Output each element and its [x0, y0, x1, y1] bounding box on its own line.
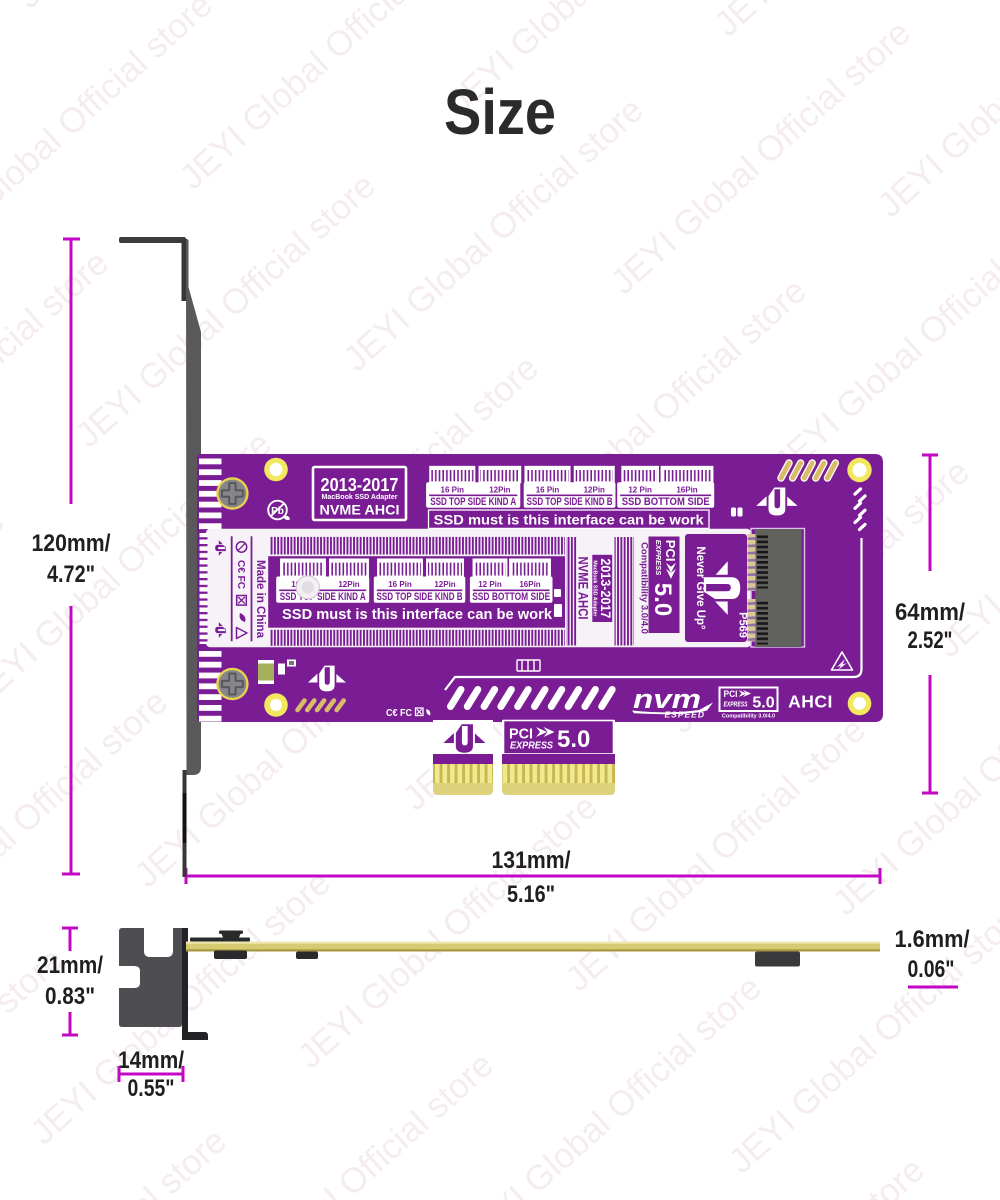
svg-text:SSD BOTTOM SIDE: SSD BOTTOM SIDE: [472, 591, 550, 603]
svg-text:MacBook SSD Adapter: MacBook SSD Adapter: [322, 494, 398, 501]
svg-text:JEYI Global Official store: JEYI Global Official store: [454, 968, 769, 1200]
svg-text:NVME AHCI: NVME AHCI: [320, 502, 400, 518]
svg-text:12Pin: 12Pin: [434, 580, 455, 589]
svg-text:JEYI Global Official store: JEYI Global Official store: [290, 787, 605, 1076]
svg-text:PCI: PCI: [663, 540, 678, 562]
svg-text:21mm/: 21mm/: [37, 952, 103, 979]
svg-text:EXPRESS: EXPRESS: [724, 702, 748, 709]
svg-text:EXPRESS: EXPRESS: [654, 540, 663, 575]
svg-text:JEYI Global Official store: JEYI Global Official store: [707, 0, 1000, 44]
svg-text:SSD TOP SIDE KIND B: SSD TOP SIDE KIND B: [527, 496, 613, 508]
svg-text:JEYI Global Official store: JEYI Global Official store: [0, 682, 175, 971]
svg-text:JEYI Global Official store: JEYI Global Official store: [603, 13, 918, 302]
svg-text:JEYI Global Official store: JEYI Global Official store: [0, 0, 220, 274]
svg-text:JEYI Global Official store: JEYI Global Official store: [766, 194, 1000, 483]
svg-text:P569: P569: [737, 612, 749, 638]
svg-text:JEYI Global Official store: JEYI Global Official store: [0, 940, 71, 1200]
svg-text:0.55": 0.55": [128, 1075, 175, 1102]
svg-text:1.6mm/: 1.6mm/: [895, 926, 970, 953]
svg-text:5.0: 5.0: [649, 583, 676, 616]
svg-text:JEYI Global Official store: JEYI Global Official store: [186, 1045, 501, 1200]
svg-text:5.0: 5.0: [752, 695, 774, 712]
svg-text:16 Pin: 16 Pin: [388, 580, 412, 589]
svg-text:JEYI Global Official store: JEYI Global Official store: [68, 166, 383, 455]
svg-text:5.16": 5.16": [507, 881, 555, 908]
svg-text:MacBook SSD Adapter: MacBook SSD Adapter: [592, 560, 598, 616]
svg-text:SSD must is this interface can: SSD must is this interface can be work: [282, 607, 553, 623]
svg-text:NVME AHCI: NVME AHCI: [576, 557, 592, 620]
svg-text:64mm/: 64mm/: [895, 599, 965, 626]
svg-text:JEYI Global Official store: JEYI Global Official store: [0, 0, 57, 93]
svg-text:0.83": 0.83": [45, 983, 95, 1010]
svg-text:0.06": 0.06": [908, 956, 955, 983]
svg-text:SSD TOP SIDE KIND B: SSD TOP SIDE KIND B: [377, 591, 463, 603]
svg-text:JEYI Global Official store: JEYI Global Official store: [617, 1150, 932, 1200]
svg-text:AHCI: AHCI: [788, 692, 833, 712]
svg-text:12Pin: 12Pin: [489, 486, 510, 495]
svg-text:SSD TOP SIDE KIND A: SSD TOP SIDE KIND A: [430, 496, 516, 508]
svg-text:Made in China: Made in China: [254, 560, 266, 639]
svg-text:2013-2017: 2013-2017: [598, 558, 614, 618]
svg-text:2013-2017: 2013-2017: [321, 475, 399, 495]
svg-text:JEYI Global Official store: JEYI Global Official store: [0, 243, 116, 532]
svg-text:EXPRESS: EXPRESS: [510, 741, 553, 752]
svg-text:12 Pin: 12 Pin: [478, 580, 502, 589]
svg-text:Size: Size: [444, 76, 556, 148]
svg-text:JEYI Global Official store: JEYI Global Official store: [172, 0, 487, 197]
svg-text:131mm/: 131mm/: [492, 847, 571, 874]
svg-text:16Pin: 16Pin: [519, 580, 540, 589]
svg-text:12Pin: 12Pin: [338, 580, 359, 589]
svg-text:PCI: PCI: [724, 689, 738, 699]
svg-text:16 Pin: 16 Pin: [441, 486, 465, 495]
svg-text:Compatibility 3.0/4.0: Compatibility 3.0/4.0: [639, 542, 650, 634]
svg-text:16 Pin: 16 Pin: [536, 486, 560, 495]
svg-text:SSD must is this interface can: SSD must is this interface can be work: [434, 513, 705, 528]
svg-text:16Pin: 16Pin: [676, 486, 697, 495]
svg-text:ESPEED: ESPEED: [665, 710, 706, 720]
svg-text:12 Pin: 12 Pin: [628, 486, 652, 495]
svg-text:5.0: 5.0: [557, 726, 590, 753]
svg-text:C€ FC: C€ FC: [235, 560, 246, 589]
svg-text:120mm/: 120mm/: [32, 530, 111, 557]
svg-text:Compatibility 3.0/4.0: Compatibility 3.0/4.0: [722, 714, 775, 720]
svg-text:SSD TOP SIDE KIND A: SSD TOP SIDE KIND A: [280, 591, 366, 603]
svg-text:12Pin: 12Pin: [584, 486, 605, 495]
svg-text:SSD BOTTOM SIDE: SSD BOTTOM SIDE: [622, 496, 710, 508]
svg-text:14mm/: 14mm/: [118, 1047, 184, 1074]
svg-text:C€ FC: C€ FC: [386, 708, 412, 719]
svg-text:2.52": 2.52": [908, 627, 953, 654]
svg-text:4.72": 4.72": [47, 561, 95, 588]
